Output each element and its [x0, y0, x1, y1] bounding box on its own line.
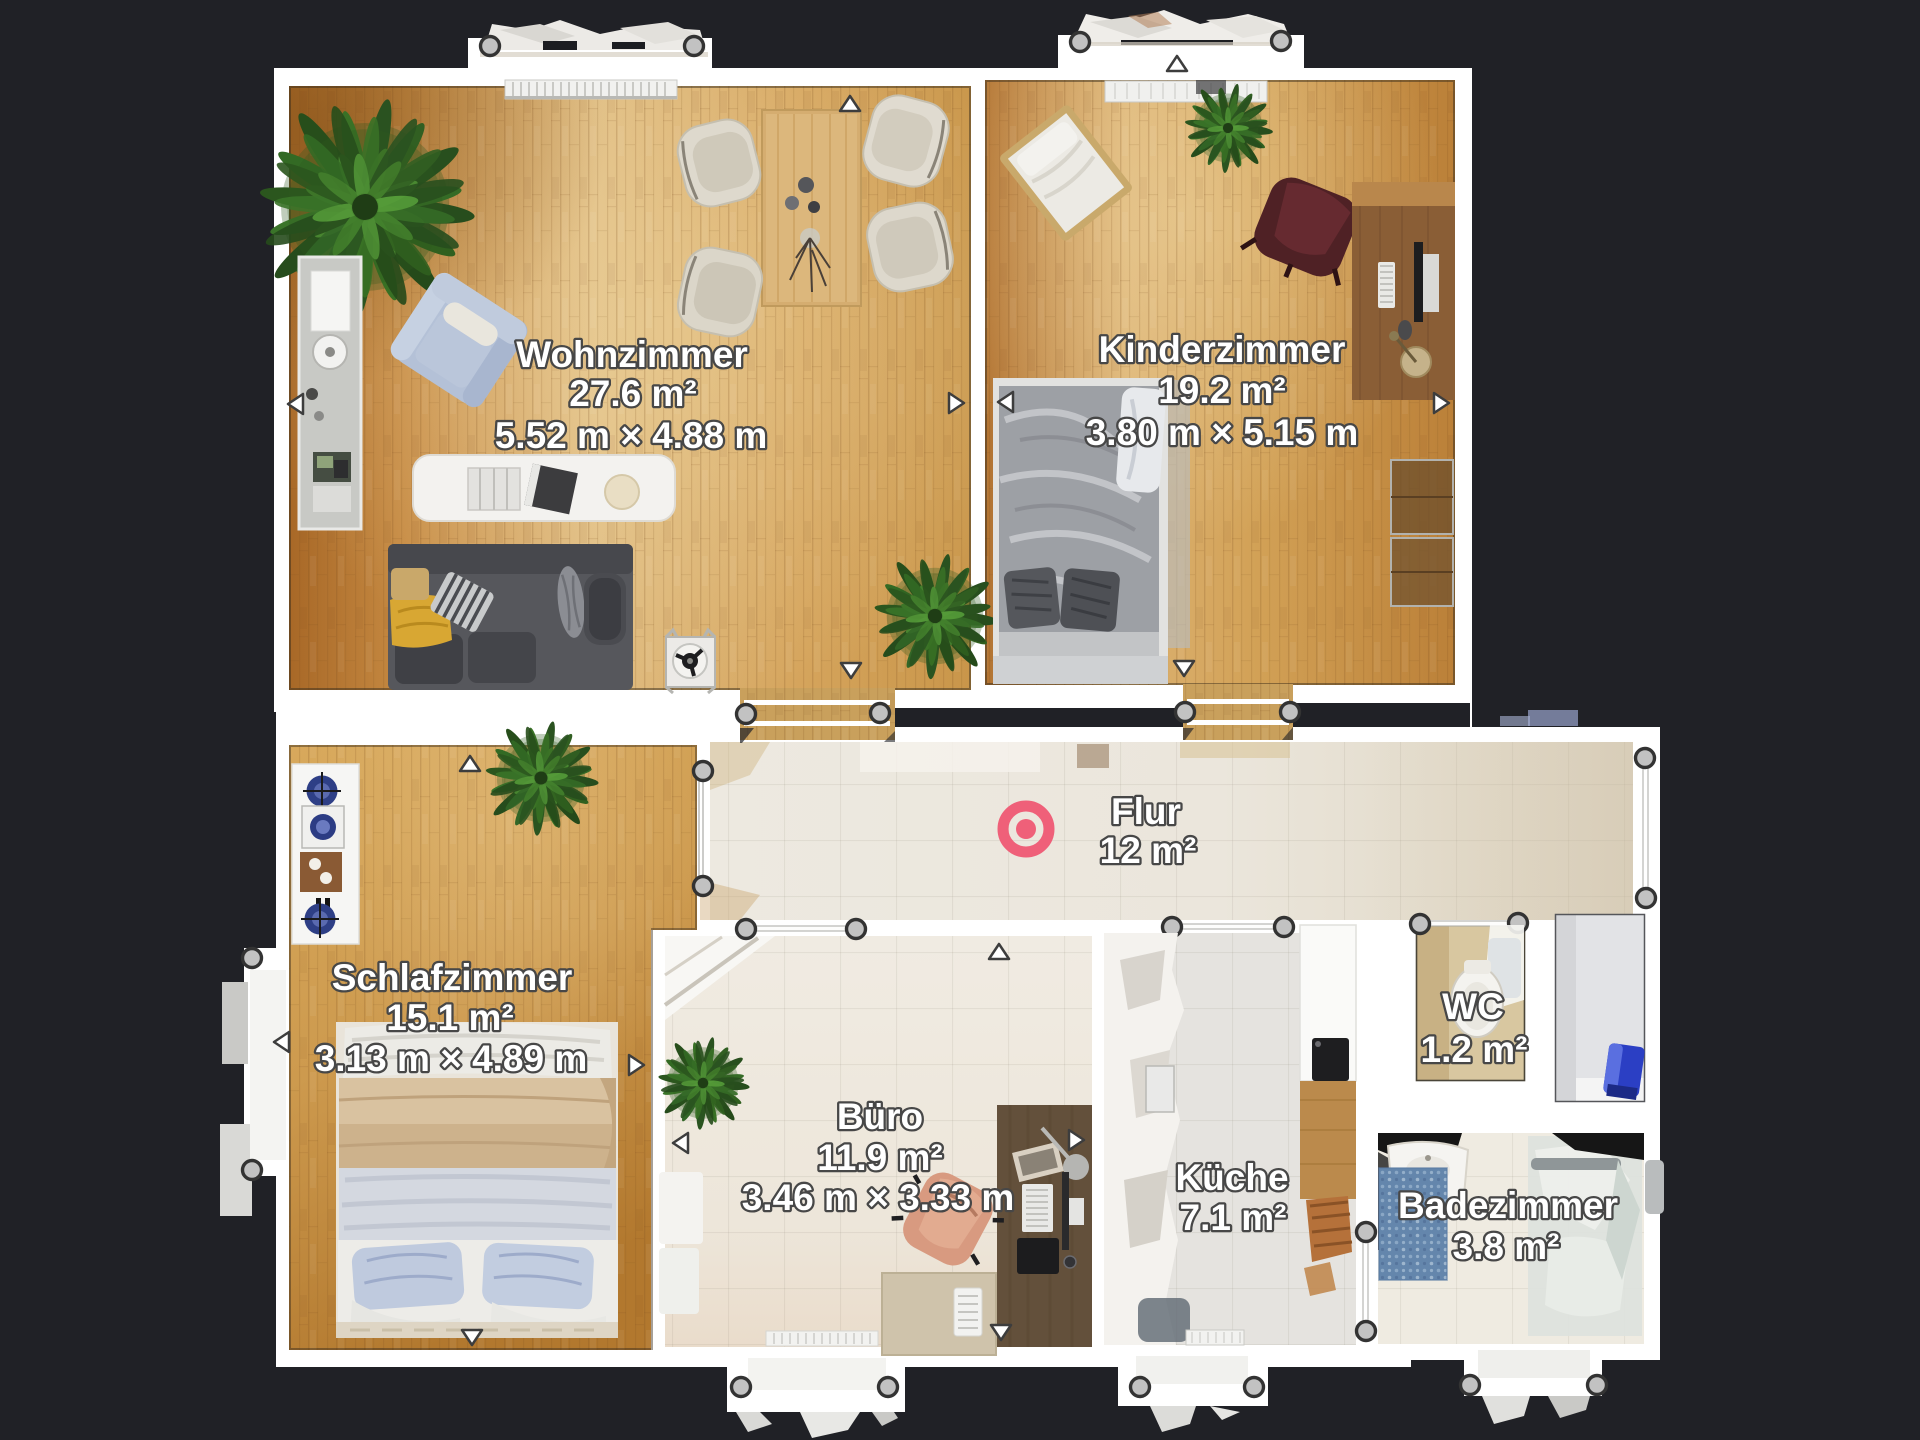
svg-text:7.1 m²: 7.1 m² [1180, 1197, 1287, 1238]
svg-text:Küche: Küche [1175, 1157, 1288, 1198]
svg-text:Wohnzimmer: Wohnzimmer [516, 334, 748, 375]
svg-text:12 m²: 12 m² [1100, 830, 1197, 871]
svg-text:Schlafzimmer: Schlafzimmer [332, 957, 573, 998]
svg-text:Kinderzimmer: Kinderzimmer [1099, 329, 1346, 370]
svg-text:Büro: Büro [837, 1096, 923, 1137]
svg-text:Flur: Flur [1111, 791, 1181, 832]
svg-text:19.2 m²: 19.2 m² [1158, 370, 1286, 411]
svg-text:WC: WC [1442, 986, 1504, 1027]
svg-text:3.8 m²: 3.8 m² [1453, 1226, 1560, 1267]
svg-text:5.52 m × 4.88 m: 5.52 m × 4.88 m [495, 415, 768, 456]
svg-text:1.2 m²: 1.2 m² [1421, 1029, 1528, 1070]
svg-text:15.1 m²: 15.1 m² [386, 997, 514, 1038]
svg-text:3.80 m × 5.15 m: 3.80 m × 5.15 m [1086, 412, 1359, 453]
svg-text:Badezimmer: Badezimmer [1398, 1185, 1618, 1226]
svg-text:27.6 m²: 27.6 m² [569, 373, 697, 414]
svg-text:3.13 m × 4.89 m: 3.13 m × 4.89 m [315, 1038, 588, 1079]
svg-text:11.9 m²: 11.9 m² [817, 1137, 942, 1178]
svg-text:3.46 m × 3.33 m: 3.46 m × 3.33 m [742, 1177, 1015, 1218]
